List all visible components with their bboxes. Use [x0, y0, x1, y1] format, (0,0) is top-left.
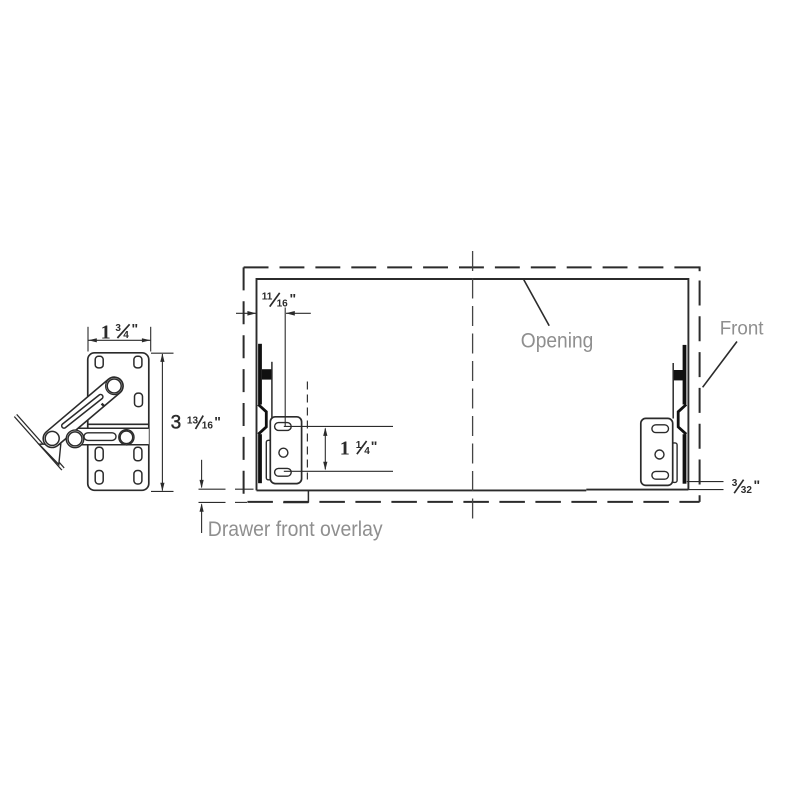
svg-text:": " — [214, 414, 221, 430]
svg-text:16: 16 — [202, 420, 214, 431]
svg-text:Front: Front — [720, 317, 764, 339]
svg-text:": " — [754, 477, 761, 493]
svg-text:4: 4 — [364, 446, 370, 457]
svg-text:Drawer front overlay: Drawer front overlay — [208, 518, 383, 541]
svg-text:3: 3 — [171, 412, 182, 433]
svg-text:": " — [290, 291, 297, 307]
svg-text:32: 32 — [741, 485, 753, 496]
svg-text:3: 3 — [732, 478, 738, 489]
svg-text:": " — [132, 320, 139, 336]
svg-text:1: 1 — [340, 438, 350, 460]
svg-text:13: 13 — [187, 415, 199, 426]
svg-text:16: 16 — [277, 299, 289, 310]
svg-text:Opening: Opening — [521, 329, 594, 352]
svg-text:4: 4 — [123, 330, 129, 341]
svg-text:": " — [371, 438, 378, 454]
svg-text:11: 11 — [262, 292, 273, 303]
svg-text:1: 1 — [101, 321, 111, 343]
svg-text:3: 3 — [115, 323, 121, 334]
